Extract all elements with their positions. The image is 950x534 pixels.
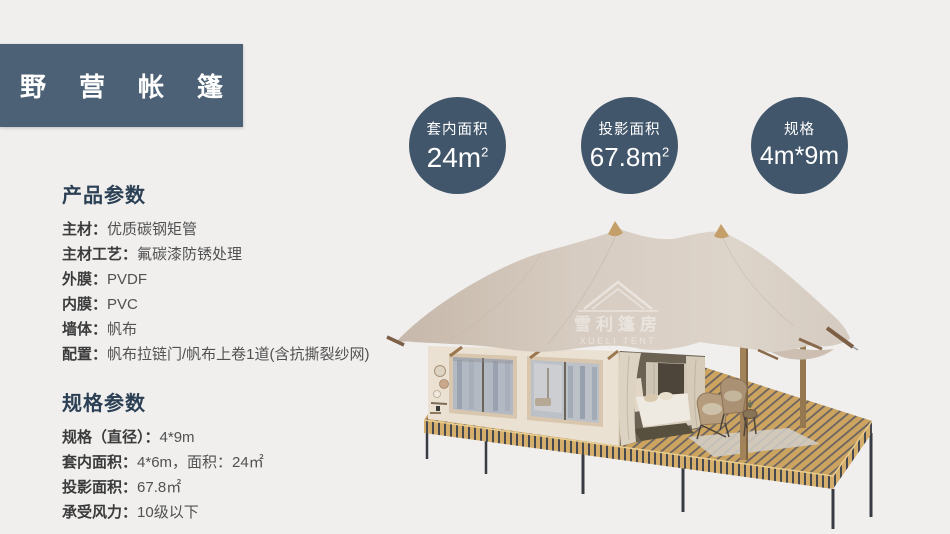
spec-params-heading: 规格参数: [62, 387, 402, 416]
param-row-outer-membrane: 外膜：PVDF: [62, 267, 402, 292]
peak-cap: [714, 224, 729, 238]
cabin-window-right: [527, 356, 603, 427]
param-row-configuration: 配置：帆布拉链门/帆布上卷1道(含抗撕裂纱网): [62, 342, 402, 367]
param-row-projection-area: 投影面积：67.8㎡: [62, 475, 402, 500]
bedroom-open-section: [618, 351, 705, 446]
cabin-window-left: [449, 353, 517, 419]
param-row-main-material: 主材：优质碳钢矩管: [62, 217, 402, 242]
watermark-cn-text: 雪利篷房: [574, 314, 662, 334]
param-row-inner-membrane: 内膜：PVC: [62, 292, 402, 317]
page-title-box: 野营帐篷: [0, 44, 243, 127]
watermark-en-text: XUELI TENT: [580, 336, 657, 346]
param-row-wall: 墙体：帆布: [62, 317, 402, 342]
badge-label: 规格: [784, 118, 815, 139]
bed-pillow: [659, 392, 673, 400]
tent-canopy: 雪利篷房 XUELI TENT: [387, 221, 858, 360]
page-title: 野营帐篷: [0, 67, 256, 104]
product-params-heading: 产品参数: [62, 179, 402, 208]
product-params-section: 产品参数 主材：优质碳钢矩管 主材工艺：氟碳漆防锈处理 外膜：PVDF 内膜：P…: [62, 179, 402, 367]
badge-value: 4m*9m: [760, 142, 839, 171]
spec-params-section: 规格参数 规格（直径）：4*9m 套内面积：4*6m，面积：24㎡ 投影面积：6…: [62, 387, 402, 525]
badge-size-spec: 规格 4m*9m: [751, 97, 848, 194]
badge-label: 套内面积: [427, 118, 489, 139]
param-row-material-process: 主材工艺：氟碳漆防锈处理: [62, 242, 402, 267]
tent-render-image: 雪利篷房 XUELI TENT: [383, 210, 950, 534]
badge-value: 67.8m2: [590, 142, 670, 173]
param-row-wind-resistance: 承受风力：10级以下: [62, 500, 402, 525]
badge-value: 24m2: [427, 142, 489, 174]
peak-cap: [608, 221, 623, 236]
param-row-interior-area: 套内面积：4*6m，面积：24㎡: [62, 450, 402, 475]
param-row-size: 规格（直径）：4*9m: [62, 425, 402, 450]
badge-label: 投影面积: [599, 118, 661, 139]
badge-interior-area: 套内面积 24m2: [409, 97, 506, 194]
badge-projection-area: 投影面积 67.8m2: [581, 97, 678, 194]
product-spec-page: 野营帐篷 套内面积 24m2 投影面积 67.8m2 规格 4m*9m 产品参数…: [0, 0, 950, 534]
